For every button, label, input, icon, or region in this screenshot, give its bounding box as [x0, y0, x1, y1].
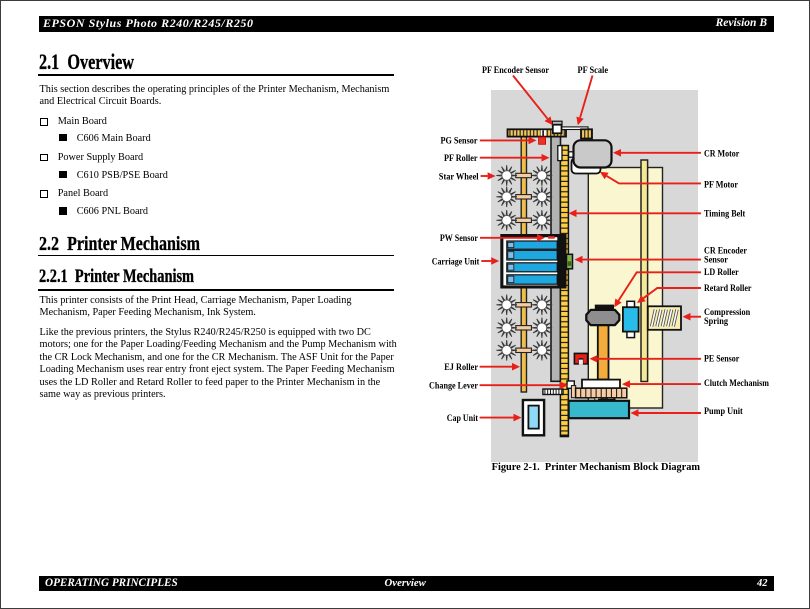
- svg-text:Pump Unit: Pump Unit: [704, 407, 744, 417]
- svg-text:Star Wheel: Star Wheel: [439, 172, 479, 182]
- svg-text:Clutch Mechanism: Clutch Mechanism: [704, 379, 769, 389]
- svg-text:Cap Unit: Cap Unit: [447, 414, 479, 424]
- svg-text:PF Motor: PF Motor: [704, 181, 739, 191]
- svg-text:PF Roller: PF Roller: [444, 154, 478, 164]
- svg-text:PE Sensor: PE Sensor: [704, 355, 740, 365]
- svg-text:EJ Roller: EJ Roller: [444, 363, 478, 373]
- svg-text:PG Sensor: PG Sensor: [441, 137, 479, 147]
- svg-text:PF Encoder Sensor: PF Encoder Sensor: [482, 66, 550, 76]
- svg-text:Retard Roller: Retard Roller: [704, 284, 752, 294]
- svg-text:PW Sensor: PW Sensor: [440, 234, 479, 244]
- svg-text:Spring: Spring: [704, 317, 728, 327]
- svg-text:CR Motor: CR Motor: [704, 150, 740, 160]
- svg-text:LD Roller: LD Roller: [704, 268, 739, 278]
- svg-text:Carriage Unit: Carriage Unit: [432, 258, 480, 268]
- svg-text:Change Lever: Change Lever: [429, 382, 479, 392]
- svg-text:PF Scale: PF Scale: [578, 66, 609, 76]
- svg-text:Timing Belt: Timing Belt: [704, 209, 746, 219]
- svg-text:Sensor: Sensor: [704, 256, 729, 266]
